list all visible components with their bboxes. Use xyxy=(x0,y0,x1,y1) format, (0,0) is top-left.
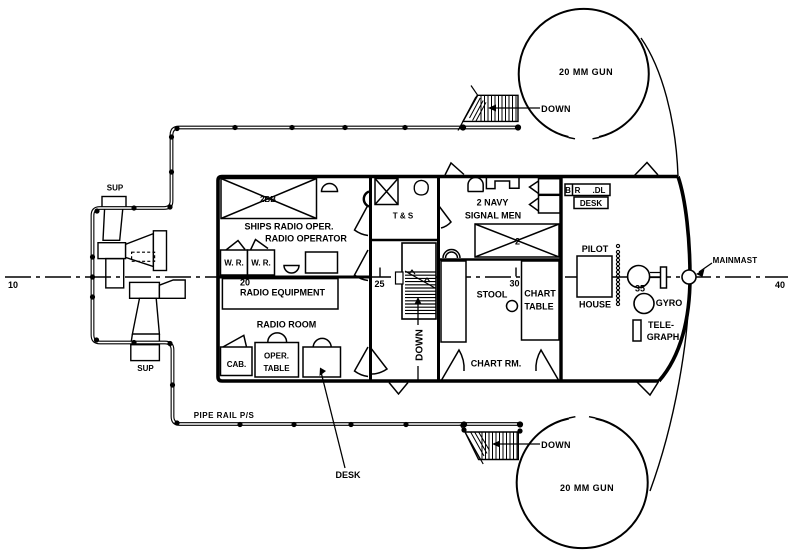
svg-text:B: B xyxy=(565,186,571,195)
svg-text:.DL: .DL xyxy=(593,186,606,195)
svg-text:20: 20 xyxy=(240,278,250,288)
svg-text:T & S: T & S xyxy=(393,212,414,221)
svg-text:PIPE RAIL P/S: PIPE RAIL P/S xyxy=(194,411,255,420)
svg-text:2BB: 2BB xyxy=(260,195,276,204)
svg-text:20 MM GUN: 20 MM GUN xyxy=(559,67,613,77)
svg-text:OPER.: OPER. xyxy=(264,352,289,361)
svg-text:DOWN: DOWN xyxy=(541,440,571,450)
svg-text:DOWN: DOWN xyxy=(415,329,426,361)
svg-text:SUP: SUP xyxy=(137,364,154,373)
svg-text:TELE-: TELE- xyxy=(648,320,674,330)
svg-text:PILOT: PILOT xyxy=(582,244,609,254)
svg-text:SHIPS RADIO OPER.: SHIPS RADIO OPER. xyxy=(244,222,333,232)
svg-text:SUP: SUP xyxy=(107,184,124,193)
svg-text:10: 10 xyxy=(8,280,18,290)
svg-text:20 MM GUN: 20 MM GUN xyxy=(560,483,614,493)
svg-text:RADIO ROOM: RADIO ROOM xyxy=(257,320,317,330)
svg-text:2: 2 xyxy=(515,237,520,247)
svg-text:HOUSE: HOUSE xyxy=(579,300,611,310)
svg-text:GYRO: GYRO xyxy=(656,298,683,308)
svg-text:35: 35 xyxy=(635,284,645,294)
svg-text:W. R.: W. R. xyxy=(224,259,244,268)
svg-text:RADIO OPERATOR: RADIO OPERATOR xyxy=(265,234,347,244)
svg-text:25: 25 xyxy=(374,279,384,289)
svg-text:40: 40 xyxy=(775,280,785,290)
svg-text:STOOL: STOOL xyxy=(477,290,508,300)
svg-text:W. R.: W. R. xyxy=(251,259,271,268)
svg-text:CHART RM.: CHART RM. xyxy=(471,359,522,369)
svg-text:TABLE: TABLE xyxy=(524,302,553,312)
svg-text:R: R xyxy=(575,186,581,195)
svg-text:DOWN: DOWN xyxy=(541,104,571,114)
svg-text:GRAPH: GRAPH xyxy=(647,332,680,342)
svg-text:DESK: DESK xyxy=(335,470,361,480)
svg-text:DESK: DESK xyxy=(580,199,602,208)
svg-text:CHART: CHART xyxy=(524,289,556,299)
svg-text:30: 30 xyxy=(509,279,519,289)
svg-text:SIGNAL MEN: SIGNAL MEN xyxy=(465,211,521,221)
svg-text:CAB.: CAB. xyxy=(227,360,247,369)
svg-text:2 NAVY: 2 NAVY xyxy=(477,198,509,208)
svg-text:TABLE: TABLE xyxy=(263,364,290,373)
svg-text:RADIO EQUIPMENT: RADIO EQUIPMENT xyxy=(240,288,326,298)
svg-text:MAINMAST: MAINMAST xyxy=(713,256,758,265)
